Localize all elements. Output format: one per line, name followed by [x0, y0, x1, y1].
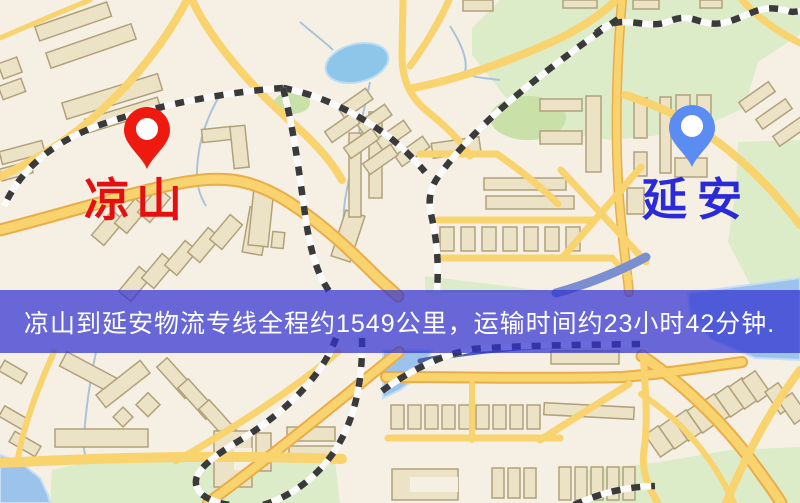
- origin-city-label: 凉山: [84, 177, 188, 223]
- origin-pin-icon[interactable]: [122, 105, 172, 169]
- destination-city-label: 延安: [642, 177, 752, 222]
- destination-pin-icon[interactable]: [667, 103, 717, 167]
- route-info-banner: 凉山到延安物流专线全程约1549公里，运输时间约23小时42分钟.: [0, 290, 800, 353]
- route-info-text: 凉山到延安物流专线全程约1549公里，运输时间约23小时42分钟.: [0, 304, 775, 340]
- map-canvas: 凉山 延安 凉山到延安物流专线全程约1549公里，运输时间约23小时42分钟.: [0, 0, 800, 503]
- map-background: [0, 0, 800, 503]
